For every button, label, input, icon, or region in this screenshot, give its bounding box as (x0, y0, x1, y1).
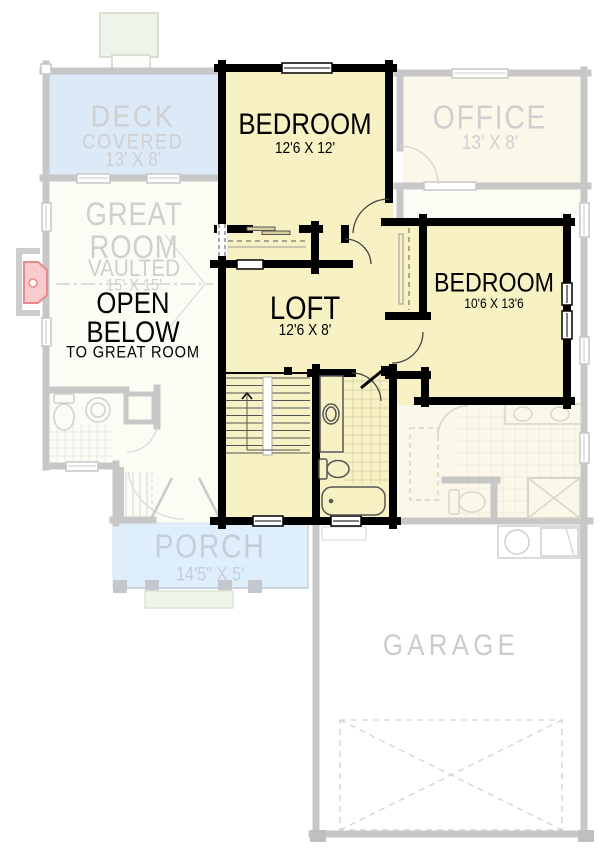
garage-label: GARAGE (383, 631, 519, 661)
bedroom-right-label: BEDROOM (434, 270, 554, 297)
deck-post (41, 64, 51, 74)
open-below-note-label: TO GREAT ROOM (66, 344, 200, 361)
chimney (100, 13, 158, 75)
office-label: OFFICE (433, 101, 547, 134)
left-wall-opening (217, 224, 227, 256)
deck-label: DECK (91, 101, 175, 132)
loft-dims-label: 12'6 X 8' (279, 323, 332, 339)
loft-label: LOFT (270, 292, 340, 324)
great-room-label-1: GREAT (85, 198, 182, 230)
office-dims-label: 13' X 8' (462, 133, 518, 153)
open-below-label-1: OPEN (96, 289, 169, 319)
garage-details (310, 526, 594, 842)
floor-plan: DECK COVERED 13' X 8' GREAT ROOM VAULTED… (0, 0, 603, 850)
deck-dims-label: 13' X 8' (105, 150, 161, 170)
bedroom-top-dims-label: 12'6 X 12' (275, 141, 335, 157)
porch-dims-label: 14'5" X 5' (176, 566, 244, 585)
bedroom-right-dims-label: 10'6 X 13'6 (464, 296, 524, 310)
porch-label: PORCH (154, 530, 265, 563)
bedroom-top-label: BEDROOM (238, 110, 371, 140)
